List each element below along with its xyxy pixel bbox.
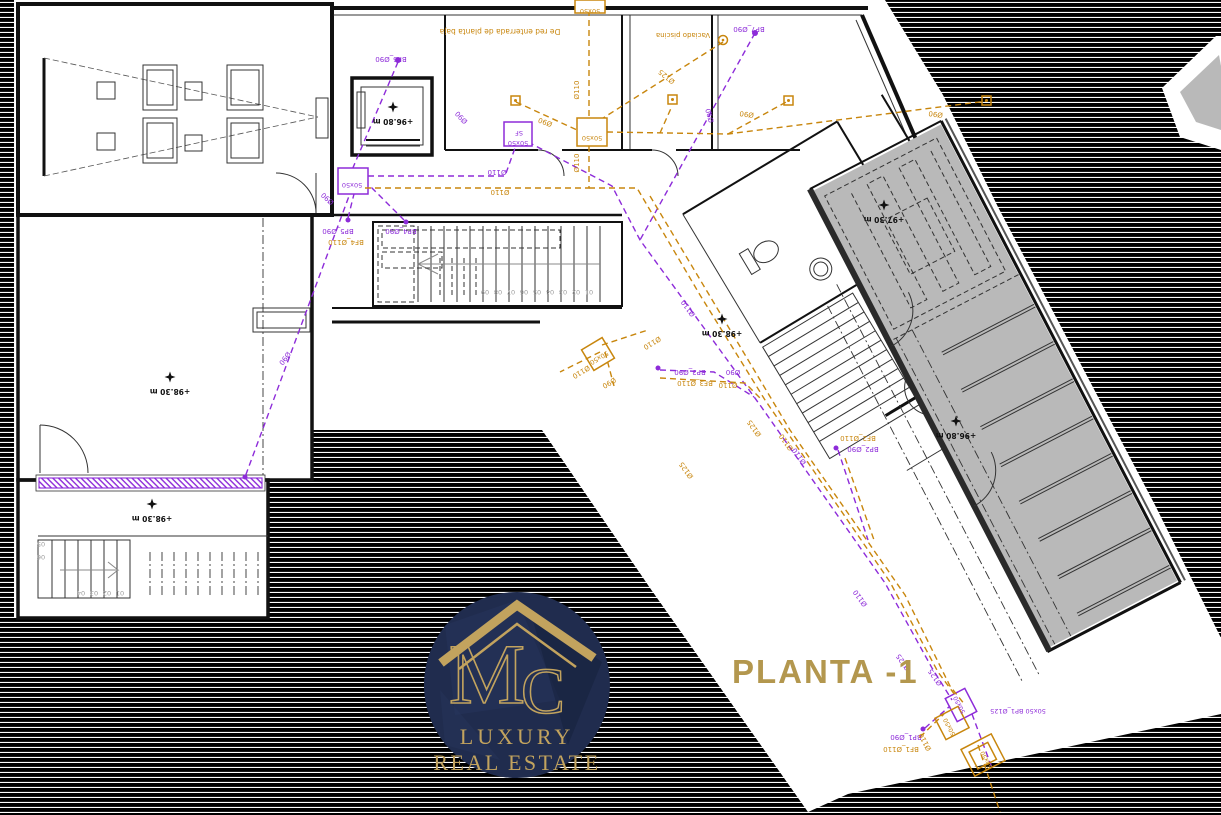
conduit-label: BF2_Ø110 — [840, 434, 876, 442]
floor-plan-svg: De red enterrada de planta bajaVaciado p… — [0, 0, 1221, 815]
conduit-label: 07 — [507, 288, 515, 296]
conduit-label: Ø110 — [719, 381, 738, 389]
logo-line2: REAL ESTATE — [433, 750, 600, 775]
conduit-label: BF1_Ø110 — [883, 745, 919, 753]
conduit-label: BP3_Ø90 — [674, 368, 705, 376]
level-label: +98.30 m — [150, 387, 191, 396]
conduit-label: BP4_Ø90 — [385, 227, 416, 235]
conduit-label: 02 — [103, 589, 111, 597]
conduit-label: 50x50 — [582, 134, 602, 142]
conduit-label: 06 — [37, 553, 45, 561]
conduit-label: 08 — [494, 288, 502, 296]
conduit-label: 05 — [533, 288, 541, 296]
conduit-label: Ø110 — [573, 154, 581, 173]
conduit-label: 01 — [116, 589, 124, 597]
level-label: +96.80 m — [936, 431, 977, 440]
conduit-label: BP2_Ø90 — [847, 445, 878, 453]
conduit-label: 05 — [37, 540, 45, 548]
page-title: PLANTA -1 — [732, 653, 919, 690]
floor-plan-canvas: De red enterrada de planta bajaVaciado p… — [0, 0, 1221, 815]
logo-monogram-m: M — [449, 626, 525, 722]
brand-logo: M C LUXURY REAL ESTATE — [424, 592, 610, 778]
conduit-label: 50x50 BP1_Ø125 — [990, 707, 1046, 715]
drain-channel — [36, 475, 265, 491]
conduit-label: 03 — [559, 288, 567, 296]
conduit-label: SF — [515, 129, 523, 137]
logo-line1: LUXURY — [460, 724, 574, 749]
conduit-label: De red enterrada de planta baja — [440, 27, 561, 36]
conduit-label: Ø90 — [726, 368, 740, 376]
conduit-label: BF3_Ø110 — [677, 379, 713, 387]
conduit-label: 04 — [77, 589, 85, 597]
level-label: +97.30 m — [864, 215, 905, 224]
conduit-label: 04 — [546, 288, 554, 296]
conduit-label: BF4_Ø110 — [328, 238, 364, 246]
conduit-label: 09 — [481, 288, 489, 296]
conduit-label: 50x50 — [580, 7, 600, 15]
conduit-label: BP7_Ø90 — [733, 25, 764, 33]
conduit-label: BP6_Ø90 — [375, 55, 406, 63]
conduit-label: Ø110 — [491, 188, 510, 196]
conduit-label: 06 — [520, 288, 528, 296]
conduit-label: 50x50 — [508, 139, 528, 147]
conduit-label: Ø110 — [573, 81, 581, 100]
conduit-label: 02 — [572, 288, 580, 296]
conduit-label: 01 — [585, 288, 593, 296]
conduit-label: BP5_Ø90 — [322, 227, 353, 235]
conduit-label: Ø110 — [488, 168, 507, 176]
conduit-label: 03 — [90, 589, 98, 597]
logo-monogram-c: C — [521, 655, 565, 728]
level-label: +98.30 m — [132, 514, 173, 523]
junction-box — [338, 168, 368, 194]
conduit-label: Vaciado piscina — [656, 31, 710, 39]
level-label: +96.80 m — [373, 117, 414, 126]
conduit-label: 50x50 — [342, 181, 362, 189]
level-label: +98.30 m — [702, 329, 743, 338]
